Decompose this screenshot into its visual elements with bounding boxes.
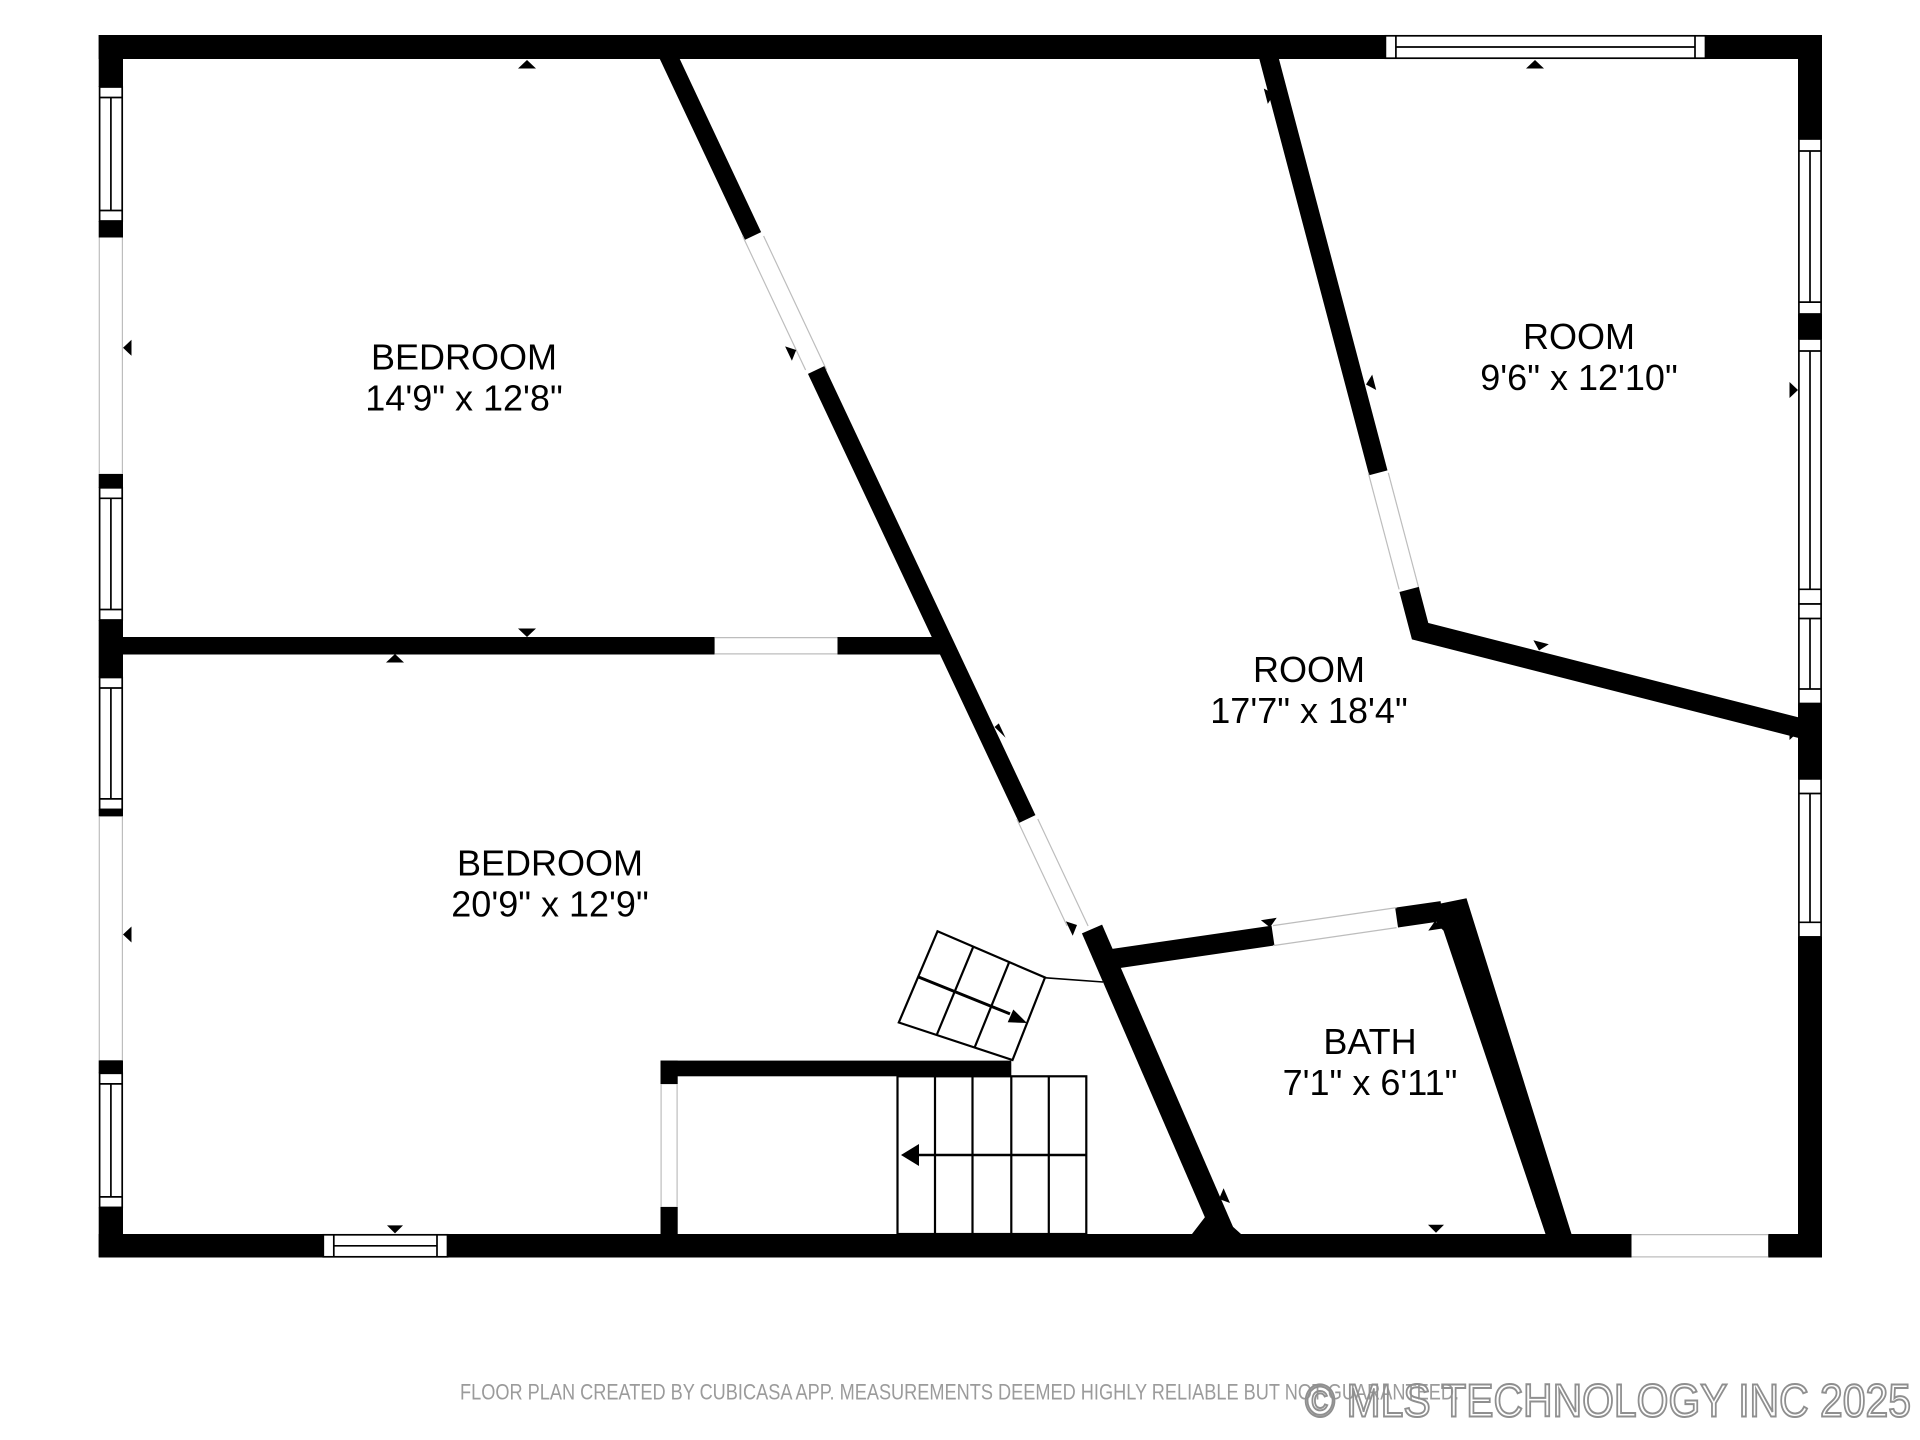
svg-text:ROOM: ROOM: [1253, 649, 1365, 690]
svg-text:© MLS TECHNOLOGY INC 2025: © MLS TECHNOLOGY INC 2025: [1305, 1375, 1911, 1427]
svg-text:9'6" x 12'10": 9'6" x 12'10": [1480, 357, 1677, 398]
svg-text:17'7" x 18'4": 17'7" x 18'4": [1210, 690, 1407, 731]
svg-text:BEDROOM: BEDROOM: [371, 337, 557, 378]
svg-text:BATH: BATH: [1323, 1021, 1416, 1062]
svg-text:14'9" x 12'8": 14'9" x 12'8": [365, 378, 562, 419]
svg-text:20'9" x 12'9": 20'9" x 12'9": [451, 884, 648, 925]
svg-text:7'1" x 6'11": 7'1" x 6'11": [1283, 1062, 1458, 1103]
svg-text:ROOM: ROOM: [1523, 316, 1635, 357]
svg-text:BEDROOM: BEDROOM: [457, 843, 643, 884]
